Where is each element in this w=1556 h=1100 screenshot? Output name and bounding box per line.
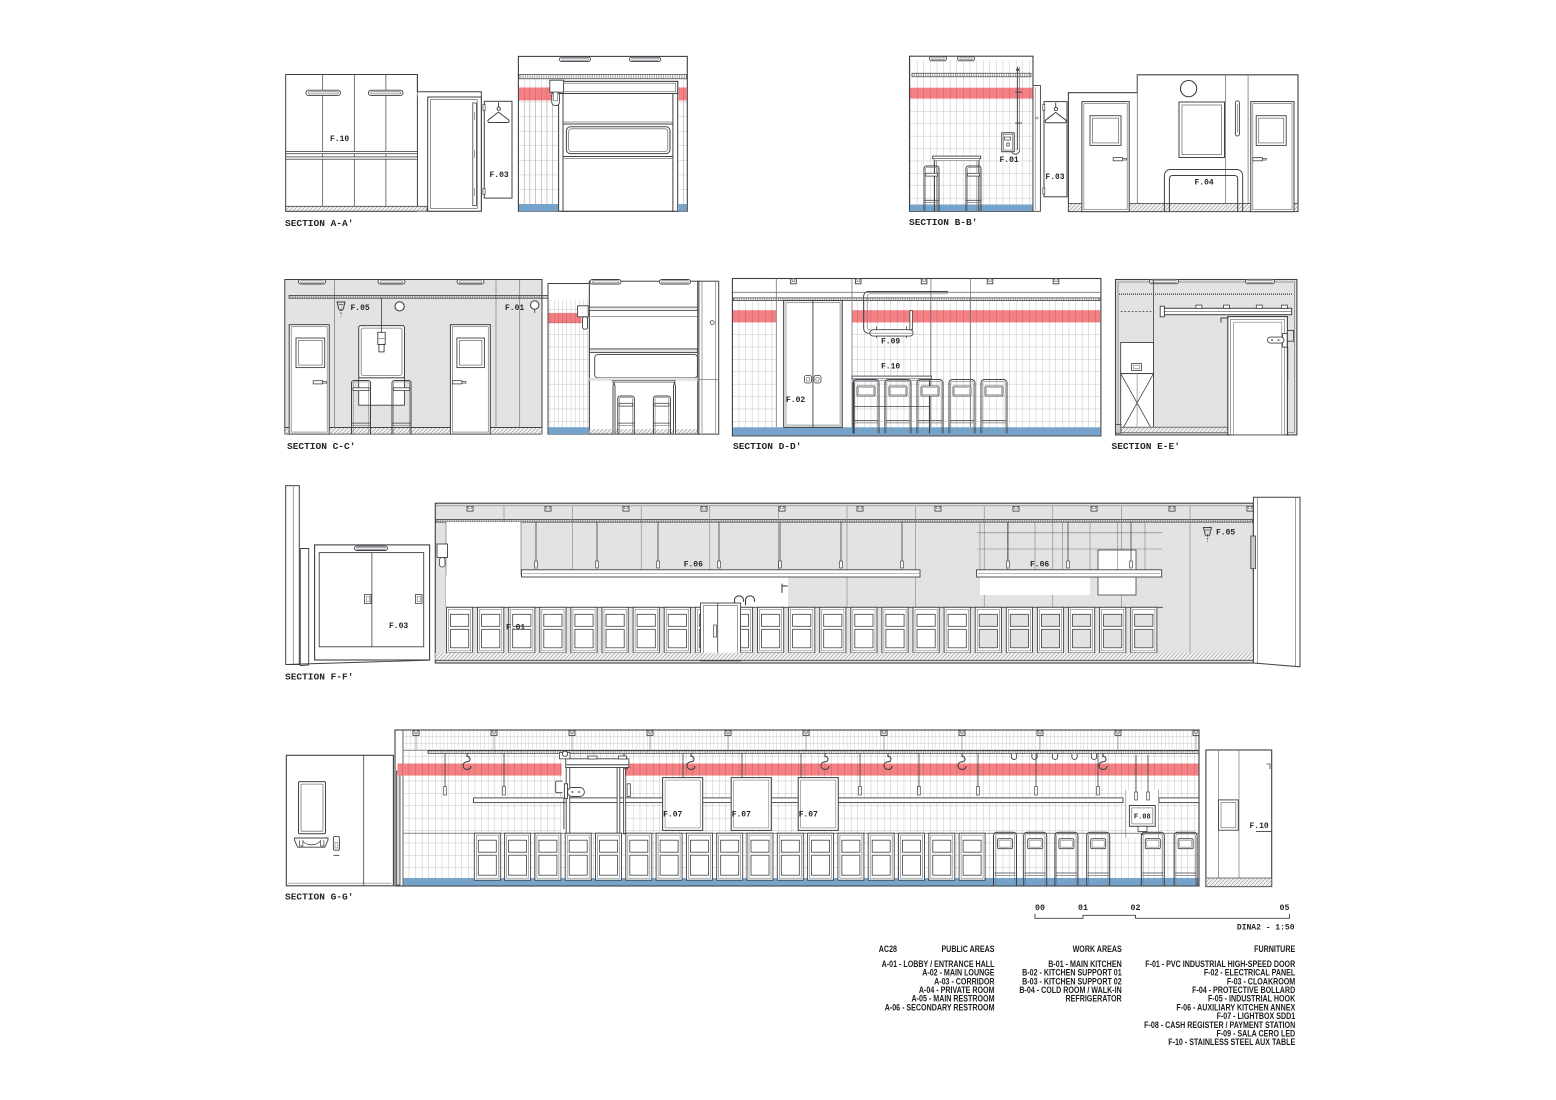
svg-text:WORK AREAS: WORK AREAS (1073, 944, 1123, 954)
svg-text:F.06: F.06 (684, 561, 703, 570)
svg-text:SECTION C-C': SECTION C-C' (287, 441, 355, 452)
svg-text:F.05: F.05 (1216, 529, 1235, 538)
svg-text:F.03: F.03 (1045, 173, 1064, 182)
svg-text:00: 00 (1035, 904, 1045, 913)
svg-text:REFRIGERATOR: REFRIGERATOR (1065, 994, 1121, 1004)
svg-text:F.01: F.01 (1000, 156, 1019, 165)
svg-text:SECTION F-F': SECTION F-F' (285, 672, 353, 683)
svg-text:F.10: F.10 (881, 363, 900, 372)
svg-text:F.04: F.04 (1195, 179, 1214, 188)
svg-text:A-06 - SECONDARY RESTROOM: A-06 - SECONDARY RESTROOM (885, 1003, 995, 1013)
svg-text:PUBLIC AREAS: PUBLIC AREAS (941, 944, 995, 954)
svg-text:F.01: F.01 (506, 624, 525, 633)
svg-text:F.10: F.10 (330, 135, 349, 144)
svg-text:F.10: F.10 (1250, 822, 1269, 831)
svg-text:AC28: AC28 (879, 944, 898, 954)
svg-text:F.03: F.03 (490, 171, 509, 180)
svg-text:F.07: F.07 (799, 811, 818, 820)
svg-text:SECTION D-D': SECTION D-D' (733, 441, 801, 452)
svg-text:SECTION B-B': SECTION B-B' (909, 217, 977, 228)
svg-text:05: 05 (1280, 904, 1290, 913)
svg-text:F.06: F.06 (1030, 561, 1049, 570)
svg-text:F.08: F.08 (1134, 814, 1151, 822)
svg-text:F.07: F.07 (663, 811, 682, 820)
svg-text:F.07: F.07 (732, 811, 751, 820)
svg-text:F-10 - STAINLESS STEEL AUX TAB: F-10 - STAINLESS STEEL AUX TABLE (1168, 1037, 1295, 1047)
svg-text:F.05: F.05 (351, 304, 370, 313)
svg-text:FURNITURE: FURNITURE (1254, 944, 1296, 954)
svg-text:SECTION G-G': SECTION G-G' (285, 892, 353, 903)
svg-text:F.03: F.03 (389, 622, 408, 631)
svg-text:F.02: F.02 (786, 396, 805, 405)
svg-text:DINA2 - 1:50: DINA2 - 1:50 (1237, 924, 1295, 933)
svg-text:01: 01 (1078, 904, 1088, 913)
svg-text:F.09: F.09 (881, 338, 900, 347)
svg-text:F.01: F.01 (505, 304, 524, 313)
svg-text:SECTION E-E': SECTION E-E' (1112, 441, 1180, 452)
svg-text:02: 02 (1131, 904, 1141, 913)
svg-text:SECTION A-A': SECTION A-A' (285, 218, 353, 229)
